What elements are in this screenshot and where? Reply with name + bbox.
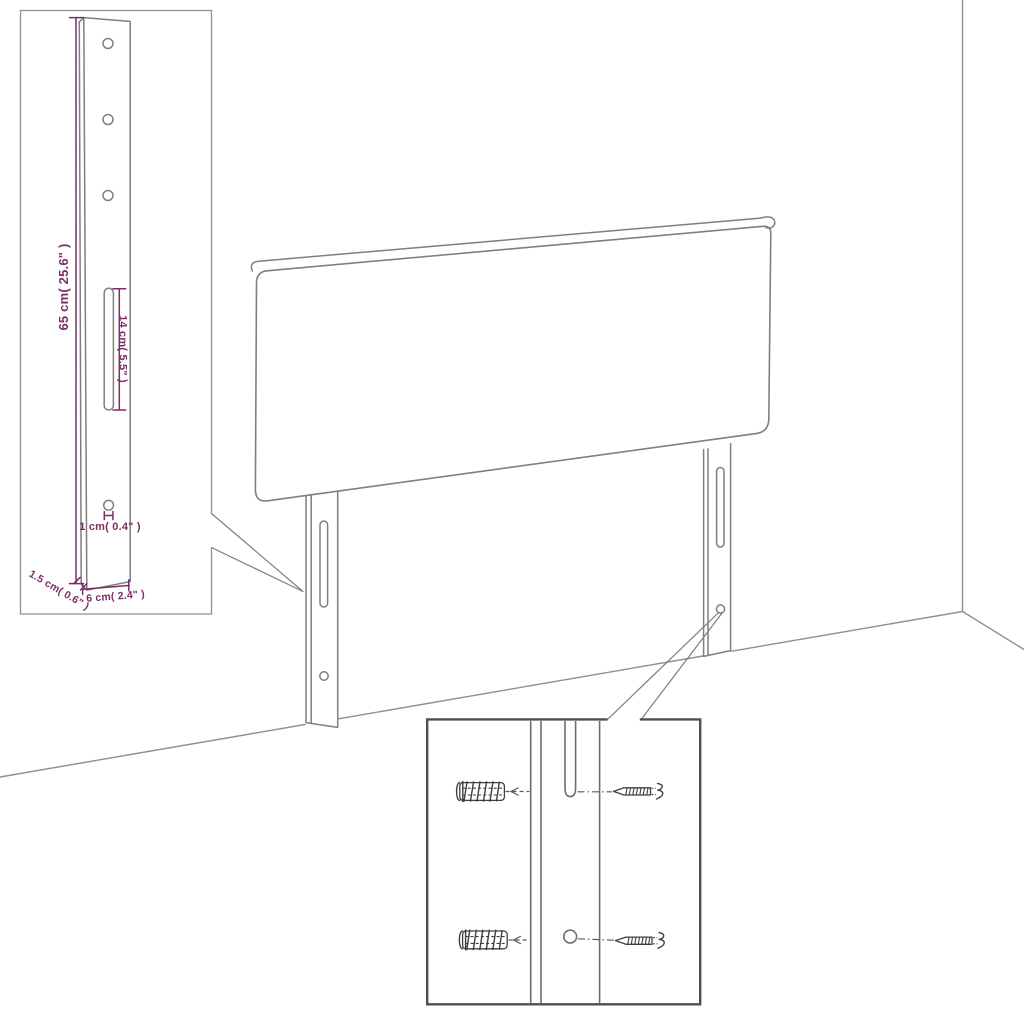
mounting-slot (320, 521, 328, 607)
bracket-small-hole (104, 500, 114, 510)
screw-icon (614, 788, 651, 795)
bracket-hole-lower (103, 191, 113, 201)
hardware-detail-inset (427, 719, 700, 1004)
headboard-assembly-diagram: 65 cm( 25.6" ) 14 cm( 5.5" ) 1 cm( 0.4" … (0, 0, 1024, 1024)
inset-background (427, 719, 700, 1004)
bracket-hole-middle (103, 115, 113, 125)
left-mounting-leg (306, 492, 338, 728)
dimension-label-hole-diameter: 1 cm( 0.4" ) (79, 521, 141, 533)
dimension-label-slot-length: 14 cm( 5.5" ) (117, 315, 129, 383)
callout-lines-left (212, 514, 304, 592)
headboard-front-face (255, 226, 770, 501)
mounting-hole-enlarged (564, 930, 577, 943)
bracket-hole-top (103, 39, 113, 49)
bracket-slot (104, 288, 113, 410)
bracket-drawing (79, 18, 130, 591)
mounting-slot (717, 468, 724, 548)
right-mounting-leg (704, 444, 731, 657)
dimension-label-height: 65 cm( 25.6" ) (56, 243, 71, 330)
headboard-panel (251, 217, 774, 501)
mounting-hole (716, 605, 724, 613)
assembly-diagram-page: 65 cm( 25.6" ) 14 cm( 5.5" ) 1 cm( 0.4" … (0, 0, 1024, 1024)
mounting-hole (320, 672, 328, 680)
